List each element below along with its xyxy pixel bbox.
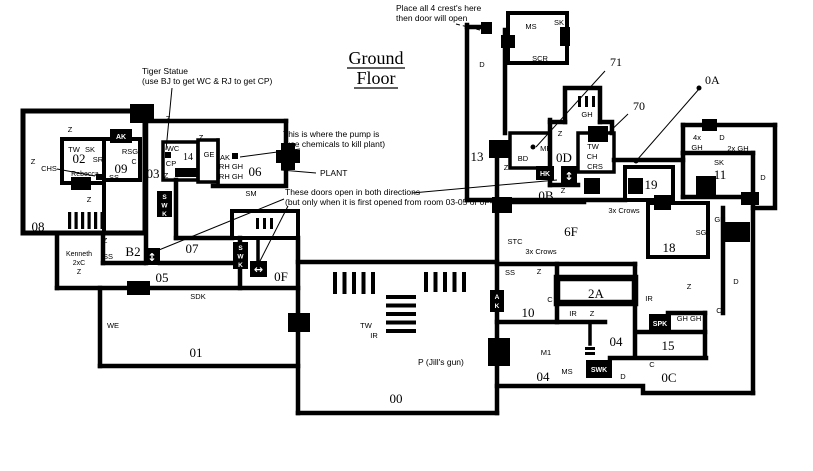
stairs-0f-room <box>256 218 273 229</box>
badge-ak-room09: AK <box>110 129 132 143</box>
code-sk: SK <box>85 145 95 154</box>
door-13-bd <box>489 140 511 158</box>
code-sdk: SDK <box>190 292 205 301</box>
code-z: Z <box>558 129 563 138</box>
page-title-line1: Ground <box>349 48 404 68</box>
door-building-junction <box>130 104 154 123</box>
code-gh: GH <box>714 215 725 224</box>
door-4xgh-top <box>702 119 717 131</box>
code-z: Z <box>164 171 169 180</box>
badge-hk: HK <box>536 166 554 180</box>
code-ms: MS <box>525 22 536 31</box>
updown-arrow-icon: ↕ <box>147 251 156 264</box>
code-z: Z <box>68 125 73 134</box>
code-cp: CP <box>166 159 176 168</box>
badge-ak-room10: A K <box>490 290 504 312</box>
room15-label: 15 <box>662 338 675 353</box>
code-c: C <box>716 306 722 315</box>
code-z: Z <box>87 195 92 204</box>
doors-note-line2: (but only when it is first opened from r… <box>285 197 505 207</box>
item-dot-ak06 <box>232 153 238 159</box>
door-00-m1 <box>488 338 510 366</box>
stairs-room08 <box>68 212 104 229</box>
code-ss: SS <box>505 268 515 277</box>
badge-letter: S <box>162 194 167 201</box>
room01-label: 01 <box>190 345 203 360</box>
badge-swk-m1: SWK <box>586 360 612 378</box>
code-mr: MR <box>540 144 552 153</box>
door-ms-left <box>501 35 515 48</box>
room18-label: 18 <box>663 240 676 255</box>
code-ss: SS <box>109 173 119 182</box>
room0b-label: 0B <box>538 188 554 203</box>
page-title-line2: Floor <box>356 68 395 88</box>
door-room19 <box>628 178 643 194</box>
pump-note-line2: (use chemicals to kill plant) <box>283 139 385 149</box>
code-z: Z <box>537 267 542 276</box>
room0d-label: 0D <box>556 150 572 165</box>
badge-letter: W <box>161 203 168 210</box>
stairs-hall-right <box>424 272 466 292</box>
badge-ak-label: AK <box>116 134 126 141</box>
badge-letter: A <box>495 294 500 301</box>
door-19-18 <box>654 195 671 210</box>
code-3xcrows: 3x Crows <box>608 206 640 215</box>
code-chs: CHS <box>41 164 57 173</box>
code-z: Z <box>31 157 36 166</box>
pump-note-line1: This is where the pump is <box>283 129 379 139</box>
code-tw: TW <box>360 321 373 330</box>
crest-note-line2: then door will open <box>396 13 468 23</box>
map-walls <box>23 13 775 413</box>
stairs-hall-left <box>333 272 375 294</box>
badge-letter: K <box>162 211 167 218</box>
code-ir: IR <box>370 331 378 340</box>
code-tw: TW <box>587 142 600 151</box>
door-d-corridor <box>741 192 759 205</box>
door-dash <box>585 352 595 355</box>
code-d: D <box>733 277 739 286</box>
crest-door-marker <box>481 22 492 34</box>
code-z: Z <box>77 269 82 276</box>
item-dot-mr <box>531 145 536 150</box>
door-ms-right <box>560 27 570 46</box>
code-c: C <box>547 295 553 304</box>
room11-label: 11 <box>714 167 727 182</box>
code-gh: GH <box>691 143 702 152</box>
kenneth-label: Kenneth <box>66 251 92 258</box>
room6f-label: 6F <box>564 224 578 239</box>
tiger-note-line1: Tiger Statue <box>142 66 188 76</box>
plant-label: PLANT <box>320 168 347 178</box>
badge-hk-label: HK <box>540 171 550 178</box>
room13-label: 13 <box>471 149 484 164</box>
code-tw: TW <box>68 145 81 154</box>
code-2xgh: 2x GH <box>727 144 748 153</box>
tiger-statue-marker <box>175 168 197 177</box>
code-z: Z <box>504 163 509 172</box>
roomb2-label: B2 <box>125 244 140 259</box>
room0f-label: 0F <box>274 269 288 284</box>
ref-0a: 0A <box>705 73 720 87</box>
code-sr: SR <box>93 155 104 164</box>
badge-door-0f: ↔ <box>250 261 267 277</box>
room19-label: 19 <box>645 177 658 192</box>
room10-label: 10 <box>522 305 535 320</box>
wall-bottom <box>497 386 753 393</box>
badge-swk-0f: S W K <box>233 242 248 269</box>
room-m1-label: M1 <box>541 348 551 357</box>
tiger-note-line2: (use BJ to get WC & RJ to get CP) <box>142 76 273 86</box>
updown-arrow-icon: ↕ <box>564 170 573 183</box>
door-18-east <box>723 222 750 242</box>
room03-label: 03 <box>147 166 160 181</box>
code-sg: SG <box>696 228 707 237</box>
crest-note-line1: Place all 4 crest's here <box>396 3 482 13</box>
door-room02 <box>71 177 91 190</box>
code-4x: 4x <box>693 133 701 142</box>
map-title: Ground Floor <box>347 48 405 88</box>
badge-letter: S <box>238 245 243 252</box>
badge-stairs-0b: ↕ <box>561 166 577 185</box>
line-doors-mid <box>259 206 288 263</box>
badge-letter: K <box>495 303 500 310</box>
room07-label: 07 <box>186 241 200 256</box>
code-ir: IR <box>645 294 653 303</box>
badge-swk-corridor03: S W K <box>157 191 172 218</box>
room2a-label: 2A <box>588 286 605 301</box>
code-crs: CRS <box>587 162 603 171</box>
code-z: Z <box>590 309 595 318</box>
code-z: Z <box>687 282 692 291</box>
door-0b-east <box>584 178 600 194</box>
leftright-arrow-icon: ↔ <box>254 263 263 276</box>
room00-label: 00 <box>390 391 403 406</box>
badge-spk-label: SPK <box>653 321 667 328</box>
code-c: C <box>649 360 655 369</box>
code-ir: IR <box>569 309 577 318</box>
room14-label: 14 <box>183 152 193 163</box>
door-dash <box>585 347 595 350</box>
room05-label: 05 <box>156 270 169 285</box>
room08-label: 08 <box>32 219 45 234</box>
code-ms: MS <box>561 367 572 376</box>
code-stc: STC <box>508 237 524 246</box>
badge-letter: W <box>237 254 244 261</box>
line-doors-right <box>412 180 557 193</box>
code-sm: SM <box>245 189 256 198</box>
code-z: Z <box>199 133 204 142</box>
door-01-00 <box>288 313 310 332</box>
room04-upper-label: 04 <box>610 334 624 349</box>
badge-letter: K <box>238 262 243 269</box>
code-ge: GE <box>204 150 215 159</box>
badge-swk-label: SWK <box>591 367 607 374</box>
code-d: D <box>719 133 725 142</box>
code-c: C <box>131 159 136 166</box>
ref-70: 70 <box>633 99 645 113</box>
ground-floor-map: AK S W K S W K ↕ ↕ ↔ HK <box>0 0 813 471</box>
code-ghgh: GH GH <box>677 314 702 323</box>
code-sk: SK <box>554 18 564 27</box>
ref-71: 71 <box>610 55 622 69</box>
room04-lower-label: 04 <box>537 369 551 384</box>
room06-label: 06 <box>249 164 263 179</box>
code-we: WE <box>107 321 119 330</box>
wall-ge-closet <box>198 140 218 182</box>
room0c-label: 0C <box>661 370 676 385</box>
stairs-hall-middle <box>386 295 416 333</box>
code-rhgh: RH GH <box>219 172 243 181</box>
code-d: D <box>620 372 626 381</box>
code-rhgh: RH GH <box>219 162 243 171</box>
code-d: D <box>760 173 766 182</box>
code-ch: CH <box>587 152 598 161</box>
code-scr: SCR <box>532 54 548 63</box>
code-2xc: 2xC <box>73 260 85 267</box>
code-z: Z <box>561 186 566 195</box>
code-ak: AK <box>220 153 230 162</box>
badge-spk: SPK <box>649 314 671 332</box>
door-tw-room <box>588 126 608 142</box>
code-ss: SS <box>103 252 113 261</box>
code-3xcrows: 3x Crows <box>525 247 557 256</box>
rebecca-label: Rebecca <box>71 171 99 178</box>
code-bd: BD <box>518 154 529 163</box>
code-sk: SK <box>714 158 724 167</box>
code-rsg: RSG <box>122 147 138 156</box>
door-corridor05 <box>127 281 150 295</box>
code-wc: WC <box>167 144 180 153</box>
code-gh: GH <box>581 110 592 119</box>
jills-gun-label: P (Jill's gun) <box>418 357 464 367</box>
code-z: Z <box>166 114 171 123</box>
code-z: Z <box>103 236 108 245</box>
doors-note-line1: These doors open in both directions <box>285 187 420 197</box>
code-d: D <box>479 60 485 69</box>
